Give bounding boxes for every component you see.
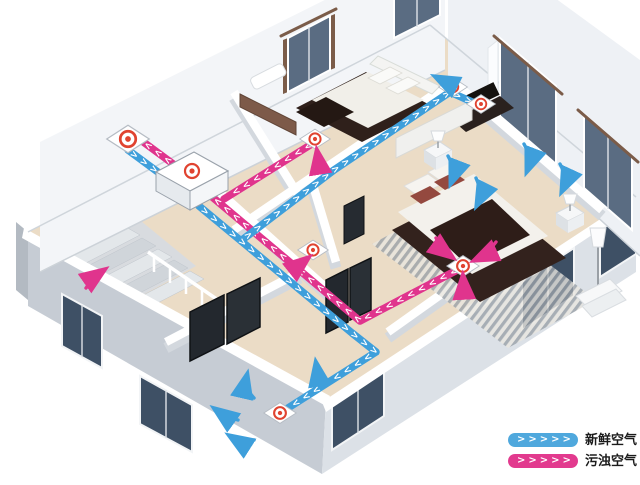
ventilation-diagram: >>>>>>>>>>>>>>>>>>>>>>>>>>>>>> >>>>>>>>>… xyxy=(0,0,640,485)
legend-row-fresh-air: >>>>> 新鲜空气 xyxy=(508,433,637,447)
legend-label-polluted-air: 污浊空气 xyxy=(585,454,637,468)
polluted-air-arrow-icon: >>>>> xyxy=(508,454,578,468)
legend: >>>>> 新鲜空气 >>>>> 污浊空气 xyxy=(508,433,637,468)
legend-label-fresh-air: 新鲜空气 xyxy=(585,433,637,447)
fresh-air-arrow-icon: >>>>> xyxy=(508,433,578,447)
isometric-house-scene: >>>>>>>>>>>>>>>>>>>>>>>>>>>>>> >>>>>>>>>… xyxy=(0,0,640,485)
legend-row-polluted-air: >>>>> 污浊空气 xyxy=(508,454,637,468)
